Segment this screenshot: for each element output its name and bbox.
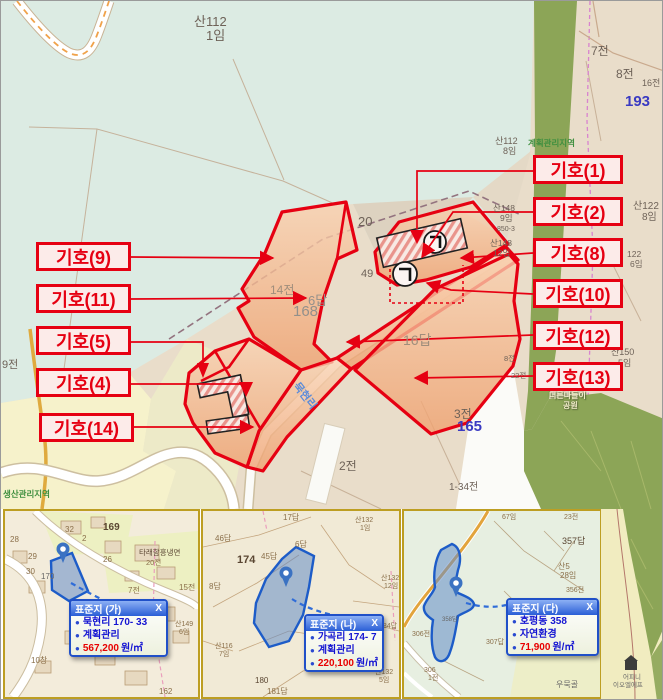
parcel-label: 16답 [403, 333, 431, 347]
parcel-label: 8전 [504, 355, 515, 363]
parcel-label: 17답 [283, 514, 299, 522]
parcel-label: 29 [28, 553, 37, 561]
callout-giho-2: 기호(2) [533, 197, 623, 226]
parcel-label: 1-34전 [449, 483, 478, 493]
parcel-label: 8임 [503, 147, 516, 156]
standard-lot-popup-ga: 표준지 (가)X ●묵현리 170- 33 ●계획관리 ●567,200원/㎡ [69, 599, 168, 657]
bullet-icon: ● [75, 629, 80, 642]
parcel-label: 32 [65, 526, 74, 534]
callout-giho-10: 기호(10) [533, 279, 623, 308]
bullet-icon: ● [75, 642, 80, 655]
parcel-label: 307답 [486, 639, 504, 646]
panel-standard-lot-na: 17답 산132 1임 46답 174 45답 6답 8답 산132 12임 1… [201, 509, 401, 699]
close-icon[interactable]: X [586, 602, 593, 613]
popup-title: 표준지 (가) [75, 601, 121, 616]
parcel-label: 6답 [295, 541, 307, 549]
parcel-label: 산122 [633, 202, 659, 212]
parcel-label: 산149 [175, 621, 193, 628]
parcel-label: 174 [237, 555, 255, 566]
parcel-label: 306전 [412, 631, 430, 638]
parcel-label: 14전 [270, 284, 294, 296]
parcel-label: 162 [159, 688, 172, 696]
popup-price-unit: 원/㎡ [121, 642, 143, 655]
popup-title: 표준지 (나) [310, 616, 356, 631]
parcel-number: 49 [361, 269, 373, 280]
parcel-label: 122 [627, 250, 641, 259]
panel-standard-lot-ga: 169 32 2 28 29 30 26 170 타래함흥냉면 20전 7전 1… [3, 509, 200, 699]
popup-address: 묵현리 170- 33 [83, 616, 147, 629]
parcel-label: 10창 [31, 657, 47, 665]
popup-address: 가곡리 174- 7 [318, 631, 377, 644]
parcel-label: 356전 [566, 587, 584, 594]
parcel-label: 12임 [493, 249, 510, 258]
village-label: 우묵골 [556, 681, 578, 689]
parcel-label: 산148 [493, 204, 515, 213]
side-strip-canvas [601, 509, 663, 700]
popup-price: 220,100 [318, 657, 354, 670]
panel-standard-lot-da: 67임 23전 357답 산5 28임 356전 306전 307답 306 1… [402, 509, 602, 699]
bullet-icon: ● [310, 631, 315, 644]
parcel-label: 산5 [558, 563, 570, 571]
parcel-label: 산112 [495, 137, 518, 146]
parcel-label: 45답 [261, 553, 277, 561]
bullet-icon: ● [75, 616, 80, 629]
parcel-label: 산148 [490, 239, 512, 248]
parcel-label: 9임 [500, 214, 513, 223]
popup-price: 567,200 [83, 642, 119, 655]
callout-giho-1: 기호(1) [533, 155, 623, 184]
parcel-label: 6임 [179, 629, 189, 636]
parcel-label: 8임 [642, 213, 657, 223]
park-label: 공원 [563, 402, 578, 410]
bullet-icon: ● [310, 657, 315, 670]
parcel-label: 산116 [215, 643, 233, 650]
parcel-label: 12임 [384, 583, 398, 590]
callout-giho-4: 기호(4) [36, 368, 131, 397]
parcel-label: 15전 [179, 584, 195, 592]
poi-label: 타래함흥냉면 [139, 549, 180, 557]
popup-price: 71,900 [520, 641, 551, 654]
parcel-label: 1임 [206, 29, 225, 42]
popup-title: 표준지 (다) [512, 600, 558, 615]
close-icon[interactable]: X [155, 603, 162, 614]
parcel-number: 193 [625, 94, 650, 109]
standard-lot-popup-da: 표준지 (다)X ●호평동 358 ●자연환경 ●71,900원/㎡ [506, 598, 599, 656]
parcel-label: 67임 [502, 514, 516, 521]
parcel-label: 1전 [428, 675, 438, 682]
parcel-label: 22전 [511, 372, 526, 380]
parcel-label: 7전 [591, 45, 609, 57]
standard-lot-popup-na: 표준지 (나)X ●가곡리 174- 7 ●계획관리 ●220,100원/㎡ [304, 614, 384, 672]
parcel-label: 8전 [616, 68, 634, 80]
parcel-label: 169 [103, 523, 120, 533]
popup-zoning: 계획관리 [318, 644, 355, 657]
side-map-strip: 어피니 이오엘에프 [601, 509, 663, 700]
zoning-label: 계획관리지역 [528, 139, 575, 148]
parcel-label: 2전 [339, 460, 357, 472]
building-label: 이오엘에프 [613, 683, 643, 690]
popup-price-unit: 원/㎡ [552, 641, 574, 654]
bullet-icon: ● [310, 644, 315, 657]
parcel-label: 5임 [379, 677, 389, 684]
parcel-number: 168 [293, 304, 318, 319]
bullet-icon: ● [512, 628, 517, 641]
parcel-label: 9전 [2, 360, 18, 371]
zoning-label: 생산관리지역 [3, 490, 50, 499]
parcel-label: 170 [41, 573, 54, 581]
building-label: 어피니 [623, 675, 641, 682]
parcel-label: 20전 [146, 559, 161, 567]
parcel-label: 30 [26, 568, 35, 576]
bullet-icon: ● [512, 615, 517, 628]
callout-giho-11: 기호(11) [36, 284, 131, 313]
parcel-label: 8답 [209, 583, 221, 591]
popup-address: 호평동 358 [520, 615, 567, 628]
parcel-label: 산132 [381, 575, 399, 582]
callout-giho-5: 기호(5) [36, 326, 131, 355]
parcel-label: 28 [10, 536, 19, 544]
close-icon[interactable]: X [371, 618, 378, 629]
bullet-icon: ● [512, 641, 517, 654]
parcel-label: 181답 [267, 688, 288, 696]
callout-giho-13: 기호(13) [533, 362, 623, 391]
parcel-label: 2 [82, 535, 86, 543]
main-map: 산112 1임 7전 8전 16전 193 계획관리지역 산112 8임 산12… [1, 1, 663, 509]
parcel-label: 1임 [360, 525, 370, 532]
parcel-number: 165 [457, 419, 482, 434]
parcel-label: 6임 [630, 260, 643, 269]
parcel-label: 7임 [219, 651, 229, 658]
parcel-label: 357답 [562, 537, 585, 546]
appraisal-map-figure: 산112 1임 7전 8전 16전 193 계획관리지역 산112 8임 산12… [0, 0, 663, 700]
parcel-label: 28임 [560, 572, 576, 580]
parcel-label: 16전 [642, 79, 660, 88]
popup-zoning: 자연환경 [520, 628, 557, 641]
popup-price-unit: 원/㎡ [356, 657, 378, 670]
parcel-label: 850-3 [497, 226, 515, 233]
parcel-label: 산112 [194, 15, 227, 28]
callout-giho-12: 기호(12) [533, 321, 623, 350]
parcel-label: 180 [255, 677, 268, 685]
parcel-label: 306 [424, 667, 436, 674]
callout-giho-9: 기호(9) [36, 242, 131, 271]
park-label: 너른나들이 [549, 392, 586, 400]
parcel-number: 20 [358, 215, 372, 228]
parcel-label: 26 [103, 556, 112, 564]
parcel-label: 358답 [442, 617, 458, 623]
parcel-label: 산132 [355, 517, 373, 524]
parcel-label: 7전 [128, 587, 140, 595]
callout-giho-14: 기호(14) [39, 413, 134, 442]
parcel-label: 23전 [564, 514, 578, 521]
callout-giho-8: 기호(8) [533, 238, 623, 267]
parcel-label: 46답 [215, 535, 231, 543]
popup-zoning: 계획관리 [83, 629, 120, 642]
